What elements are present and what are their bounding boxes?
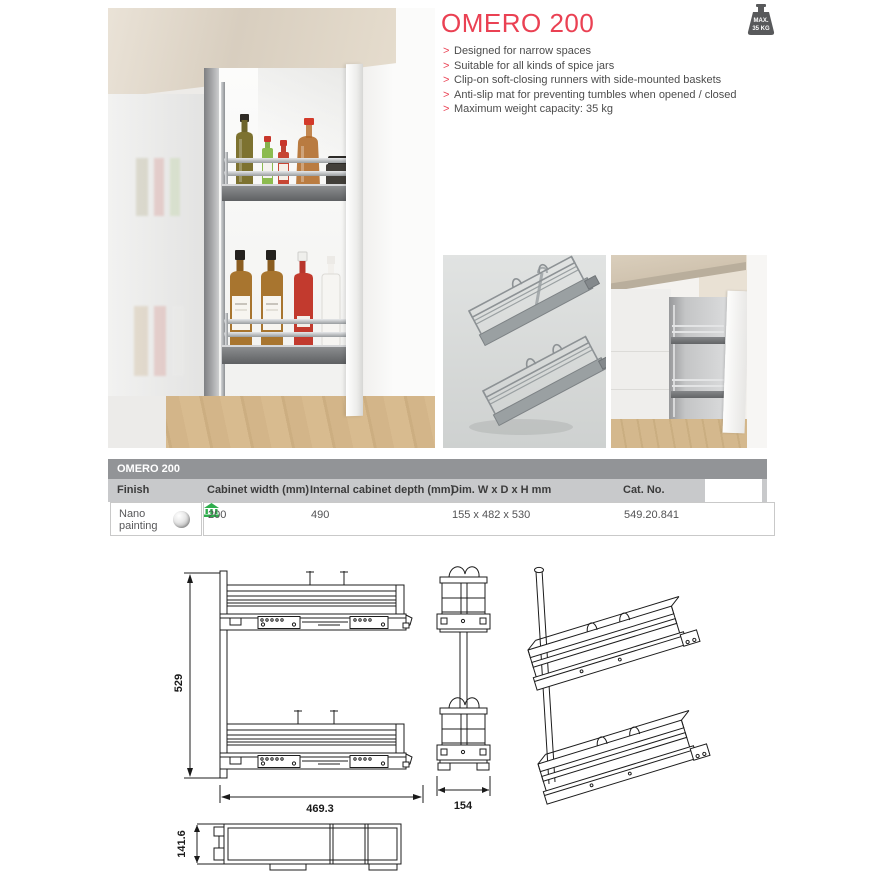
table-title-bar [108,459,767,479]
shelf-rail [672,379,724,381]
dim-height-label: 529 [173,674,185,692]
page-title: OMERO 200 [441,8,594,39]
shelf-rail [224,332,358,337]
product-photo-main [108,8,435,448]
cabinet-door-open [346,64,363,416]
rack-render [443,255,606,448]
feature-text: Maximum weight capacity: 35 kg [454,102,613,117]
table-row-finish-cell: Nano painting [110,502,202,536]
shelf-rail [224,171,358,176]
weight-icon: MAX. 35 KG [745,4,777,40]
feature-item: >Maximum weight capacity: 35 kg [443,102,737,117]
shelf-rail [224,319,358,324]
cabinet-opening [669,297,727,423]
finish-value: Nano painting [119,508,167,532]
bullet-chevron: > [443,73,454,88]
feature-text: Designed for narrow spaces [454,44,591,59]
cat-no-value: 549.20.841 [624,509,679,521]
bottle-reflection [134,306,192,376]
drawing-side-view: 529 [170,563,435,815]
feature-item: >Clip-on soft-closing runners with side-… [443,73,737,88]
col-finish: Finish [117,479,149,502]
shelf-base-lower [222,345,360,364]
dim-front-width-label: 154 [454,800,473,812]
product-photo-cabinet [611,255,767,448]
shelf-rail [224,158,358,163]
shelf-post [225,152,228,185]
col-internal-depth: Internal cabinet depth (mm) [310,479,454,502]
sphere-swatch-icon [173,511,190,528]
bullet-chevron: > [443,102,454,117]
spec-table: OMERO 200 Finish Cabinet width (mm) Inte… [108,459,768,539]
shelf-post [225,313,228,346]
dimensions-value: 155 x 482 x 530 [452,509,530,521]
drawing-isometric-view [512,556,717,814]
cabinet-side-panel [360,8,435,448]
feature-text: Clip-on soft-closing runners with side-m… [454,73,721,88]
shelf-base [671,337,725,344]
badge-line2: 35 KG [752,26,770,32]
dim-depth-label: 141.6 [176,830,188,858]
drawer-seam [611,389,669,390]
bullet-chevron: > [443,88,454,103]
feature-item: >Suitable for all kinds of spice jars [443,59,737,74]
shelf-rail [672,385,724,387]
drawing-front-view: 154 [432,560,502,815]
table-header-edge [762,479,767,503]
side-view-tier-lower [220,710,412,769]
catalog-page: OMERO 200 MAX. 35 KG >Designed for narro… [0,0,879,879]
shelf-base [671,391,725,398]
feature-text: Suitable for all kinds of spice jars [454,59,614,74]
cabinet-opening-edge [204,68,219,408]
feature-text: Anti-slip mat for preventing tumbles whe… [454,88,737,103]
cabinet-front [611,289,671,421]
table-title: OMERO 200 [117,459,180,479]
bullet-chevron: > [443,59,454,74]
table-row: 200 490 155 x 482 x 530 549.20.841 [203,502,775,536]
shelf-base-upper [222,184,360,201]
cabinet-door-open [723,291,750,434]
internal-depth-value: 490 [311,509,329,521]
drawer-seam [611,351,669,352]
dim-width-label: 469.3 [306,803,334,815]
drawing-top-view: 141.6 [172,818,417,878]
pullout-frame-post [673,305,675,417]
cabinet-side-panel [747,255,767,448]
badge-line1: MAX. [754,18,769,24]
cabinet-width-value: 200 [208,509,226,521]
bottle-reflection [136,158,190,216]
shelf-rail [672,325,724,327]
cabinet-plinth [108,396,166,448]
bullet-chevron: > [443,44,454,59]
col-cabinet-width: Cabinet width (mm) [207,479,309,502]
feature-item: >Designed for narrow spaces [443,44,737,59]
col-cat-no: Cat. No. [623,479,665,502]
feature-item: >Anti-slip mat for preventing tumbles wh… [443,88,737,103]
col-dimensions: Dim. W x D x H mm [451,479,551,502]
product-photo-rack [443,255,606,448]
side-view-tier-upper [220,571,412,630]
shelf-rail [672,331,724,333]
feature-list: >Designed for narrow spaces >Suitable fo… [443,44,737,117]
